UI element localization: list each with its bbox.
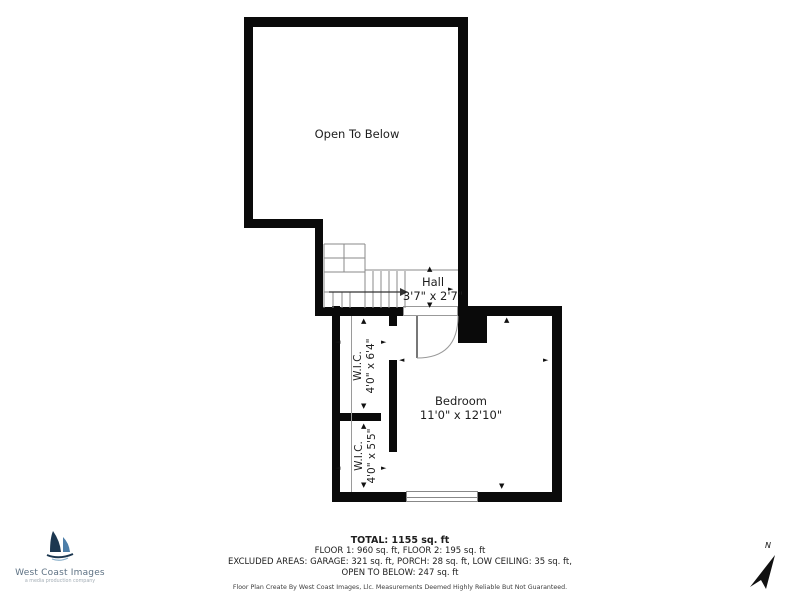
north-label: N xyxy=(765,541,771,550)
wic-lower-dim-arrow-right-icon: ► xyxy=(381,465,386,472)
room-wic-lower: W.I.C. 4'0" x 5'5" xyxy=(353,411,381,501)
floor-areas: FLOOR 1: 960 sq. ft, FLOOR 2: 195 sq. ft xyxy=(0,546,800,557)
company-tagline: a media production company xyxy=(10,579,110,584)
sailboat-icon xyxy=(45,530,75,563)
company-name: West Coast Images xyxy=(10,568,110,578)
floor-plan-page: Open To Below Hall 3'7" x 2'7" Bedroom 1… xyxy=(0,0,800,600)
wic-upper-dimensions: 4'0" x 6'4" xyxy=(365,321,378,411)
hall-dim-arrow-down-icon: ▼ xyxy=(427,302,432,309)
wall-top-room-left xyxy=(244,17,253,228)
hall-dim-arrow-right-icon: ► xyxy=(448,286,453,293)
room-hall: Hall 3'7" x 2'7" xyxy=(383,275,483,304)
room-open-to-below: Open To Below xyxy=(257,127,457,141)
hall-dim-arrow-up-icon: ▲ xyxy=(427,266,432,273)
wic-upper-dim-arrow-left-icon: ◄ xyxy=(335,339,340,346)
hall-label: Hall xyxy=(383,275,483,289)
wic-upper-dim-arrow-right-icon: ► xyxy=(381,339,386,346)
wic-upper-dim-arrow-down-icon: ▼ xyxy=(361,403,366,410)
bedroom-window xyxy=(406,491,478,502)
wic-lower-dim-arrow-left-icon: ◄ xyxy=(335,465,340,472)
room-bedroom: Bedroom 11'0" x 12'10" xyxy=(361,394,561,423)
bedroom-dim-arrow-up-icon: ▲ xyxy=(504,317,509,324)
open-to-below-label: Open To Below xyxy=(257,127,457,141)
bedroom-door-swing xyxy=(400,300,465,362)
disclaimer-text: Floor Plan Create By West Coast Images, … xyxy=(0,584,800,591)
bedroom-dim-arrow-left-icon: ◄ xyxy=(399,357,404,364)
wic-upper-label: W.I.C. xyxy=(352,321,365,411)
wic-lower-dimensions: 4'0" x 5'5" xyxy=(366,411,379,501)
wall-closet-partition-stub xyxy=(389,316,397,326)
excluded-areas-line2: OPEN TO BELOW: 247 sq. ft xyxy=(0,568,800,579)
bedroom-dim-arrow-right-icon: ► xyxy=(543,357,548,364)
excluded-areas-line1: EXCLUDED AREAS: GARAGE: 321 sq. ft, PORC… xyxy=(0,557,800,568)
window-pane-line xyxy=(407,497,477,498)
wic-lower-dim-arrow-down-icon: ▼ xyxy=(361,482,366,489)
company-logo: West Coast Images a media production com… xyxy=(10,530,110,584)
area-summary: TOTAL: 1155 sq. ft FLOOR 1: 960 sq. ft, … xyxy=(0,535,800,579)
wall-bedroom-left xyxy=(332,306,340,502)
wall-top-room-bottom xyxy=(244,219,323,228)
wall-top-room-top xyxy=(244,17,467,27)
room-wic-upper: W.I.C. 4'0" x 6'4" xyxy=(352,321,380,411)
wic-upper-dim-arrow-up-icon: ▲ xyxy=(361,318,366,325)
total-area: TOTAL: 1155 sq. ft xyxy=(0,535,800,546)
hall-dimensions: 3'7" x 2'7" xyxy=(383,289,483,303)
bedroom-dim-arrow-down-icon: ▼ xyxy=(499,483,504,490)
wic-lower-dim-arrow-up-icon: ▲ xyxy=(361,423,366,430)
bedroom-dimensions: 11'0" x 12'10" xyxy=(361,408,561,422)
north-arrow-icon xyxy=(746,552,782,592)
bedroom-label: Bedroom xyxy=(361,394,561,408)
